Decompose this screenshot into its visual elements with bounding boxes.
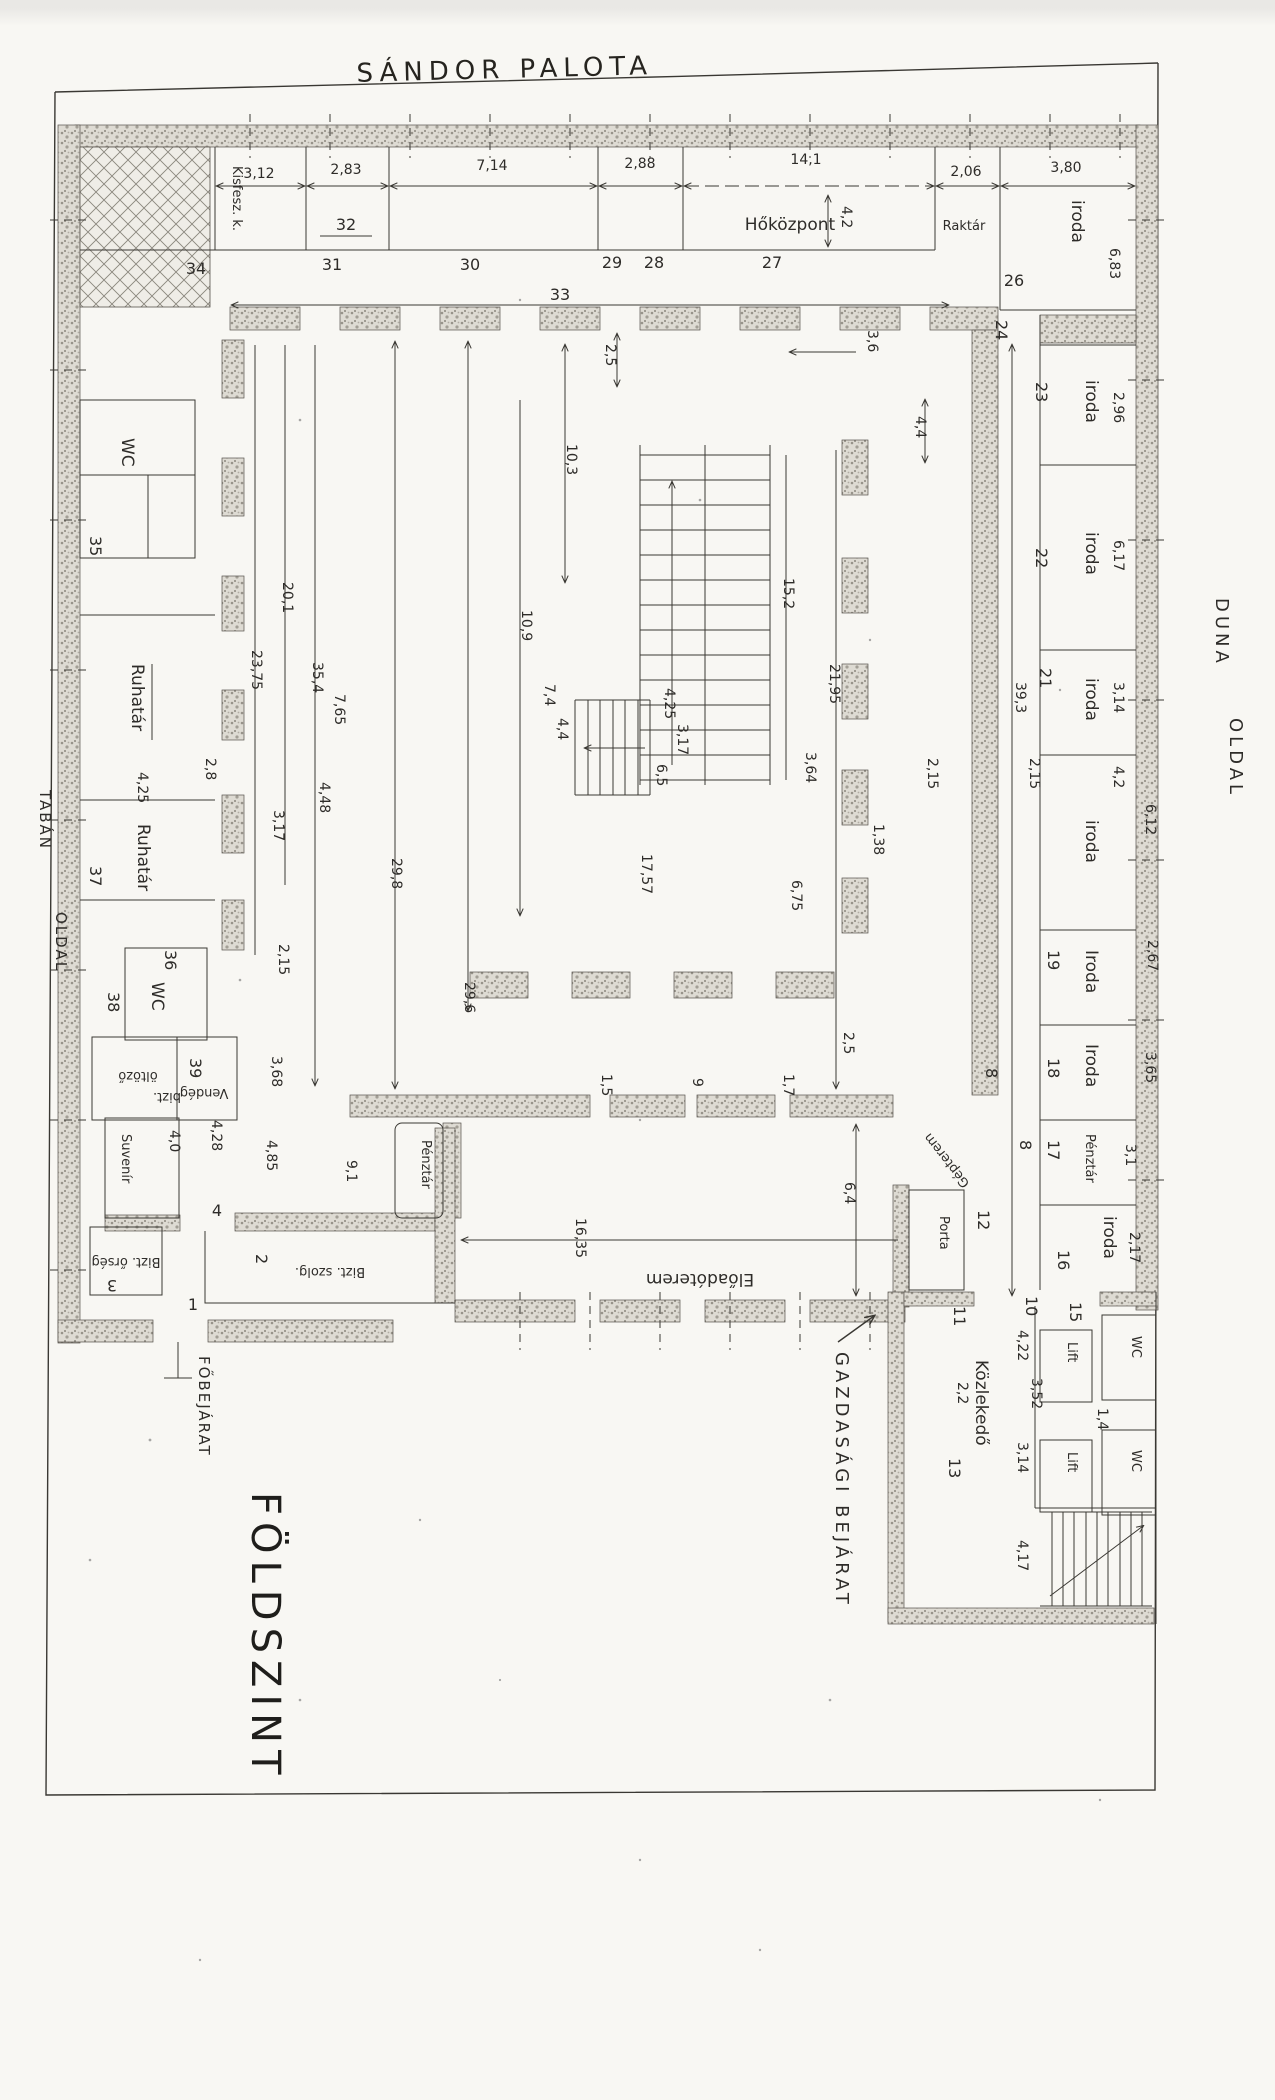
dim-1-38: 1,38 [870, 824, 886, 855]
room-number-19: 19 [1044, 950, 1063, 970]
dim-2-2: 2,2 [954, 1382, 970, 1404]
page-title: SÁNDOR PALOTA [356, 49, 653, 89]
dim-4-2-right: 4,2 [1110, 766, 1126, 788]
room-label-bizt-szolg: Bizt. szolg. [295, 1264, 365, 1279]
room-number-31: 31 [322, 255, 342, 274]
dim-4-28: 4,28 [208, 1120, 224, 1151]
dim-2-8: 2,8 [202, 758, 218, 780]
dim-7-14: 7,14 [476, 158, 507, 174]
room-label-iroda-corner: iroda [1067, 200, 1087, 243]
room-number-8b: 8 [1016, 1140, 1035, 1150]
room-number-13: 13 [945, 1458, 964, 1478]
dim-20-1: 20,1 [279, 582, 295, 613]
dim-3-1: 3,1 [1122, 1144, 1138, 1166]
room-number-12: 12 [974, 1210, 993, 1230]
dim-3-68: 3,68 [268, 1056, 284, 1087]
room-label-wc-36: WC [147, 982, 167, 1011]
dim-39-3: 39,3 [1012, 682, 1028, 713]
dim-3-52: 3,52 [1028, 1378, 1044, 1409]
room-number-23: 23 [1032, 382, 1051, 402]
dim-1-7: 1,7 [780, 1074, 796, 1096]
dim-6-12: 6,12 [1142, 804, 1158, 835]
dim-3-80: 3,80 [1050, 160, 1081, 176]
room-label-vendeg: Vendég [180, 1085, 229, 1100]
dim-2-83: 2,83 [330, 162, 361, 178]
main-entrance-label: FŐBEJÁRAT [195, 1356, 215, 1457]
room-label-porta: Porta [936, 1216, 951, 1250]
main-entrance-mark [164, 1342, 192, 1378]
room-label-raktar: Raktár [943, 219, 986, 234]
dim-33: 33 [550, 285, 570, 304]
room-number-36: 36 [161, 950, 180, 970]
room-label-iroda-22: iroda [1081, 532, 1101, 575]
dim-4-25-left: 4,25 [134, 772, 150, 803]
dim-3-6: 3,6 [864, 330, 880, 352]
dim-21-95: 21,95 [826, 664, 842, 704]
room-label-ruhatar-1: Ruhatár [127, 664, 147, 731]
dim-35-4: 35,4 [309, 662, 325, 693]
dim-1-5: 1,5 [598, 1074, 614, 1096]
side-label-duna-oldal: OLDAL [1225, 718, 1246, 798]
room-label-iroda-19: Iroda [1081, 950, 1101, 993]
dim-4-0: 4,0 [166, 1130, 182, 1152]
room-label-suvenir: Suvenír [118, 1134, 133, 1184]
hatched-corner-room [80, 147, 210, 307]
dim-3-12: 3,12 [243, 166, 274, 182]
dim-14-1: 14,1 [790, 152, 821, 168]
dim-4-22: 4,22 [1014, 1330, 1030, 1361]
room-label-lift-1: Lift [1064, 1342, 1079, 1362]
room-label-wc-a: WC [1128, 1336, 1143, 1358]
room-number-21: 21 [1036, 668, 1055, 688]
room-number-30: 30 [460, 255, 480, 274]
dim-4-25-stair: 4,25 [661, 688, 677, 719]
dim-3-14-annex: 3,14 [1014, 1442, 1030, 1473]
room-number-17: 17 [1044, 1140, 1063, 1160]
dim-6-75: 6,75 [788, 880, 804, 911]
floor-plan-drawing: SÁNDOR PALOTA FÖLDSZINT FŐBEJÁRAT GAZDAS… [0, 0, 1275, 2100]
floor-title: FÖLDSZINT [242, 1492, 290, 1782]
dim-1-4: 1,4 [1094, 1408, 1110, 1430]
annex-staircase [1040, 1512, 1152, 1606]
room-label-wc-b: WC [1128, 1450, 1143, 1472]
dim-2-88: 2,88 [624, 156, 655, 172]
room-label-ruhatar-2: Ruhatár [133, 824, 153, 891]
small-staircase [575, 700, 650, 795]
dim-2-15-left: 2,15 [275, 944, 291, 975]
room-label-iroda-21: iroda [1081, 678, 1101, 721]
dim-3-65: 3,65 [1142, 1052, 1158, 1083]
room-label-kozlekedo: Közlekedő [971, 1360, 991, 1446]
room-number-39: 39 [186, 1058, 205, 1078]
room-number-2: 2 [252, 1254, 271, 1264]
dim-23-75: 23,75 [248, 650, 264, 690]
scan-specks [89, 299, 1102, 1961]
room-number-28: 28 [644, 253, 664, 272]
dim-4-2-top: 4,2 [838, 206, 854, 228]
dim-10-9: 10,9 [518, 610, 534, 641]
dim-6-4: 6,4 [841, 1182, 857, 1204]
dim-6-5: 6,5 [653, 764, 669, 786]
room-label-bizt: bizt. [153, 1089, 181, 1104]
dim-6-83: 6,83 [1106, 248, 1122, 279]
dim-2-06: 2,06 [950, 164, 981, 180]
room-number-15: 15 [1066, 1302, 1085, 1322]
dim-2-15-center: 2,15 [924, 758, 940, 789]
room-number-24: 24 [992, 320, 1011, 340]
room-number-38: 38 [104, 992, 123, 1012]
dim-6-17: 6,17 [1110, 540, 1126, 571]
room-label-penztar-17: Pénztár [1082, 1134, 1097, 1184]
dim-16-35: 16,35 [572, 1218, 588, 1258]
room-number-4: 4 [212, 1201, 222, 1220]
room-label-gepterem: Gépterem [921, 1130, 973, 1191]
dim-17-57: 17,57 [638, 854, 654, 894]
dim-3-64: 3,64 [802, 752, 818, 783]
inner-wall-stubs [222, 340, 244, 950]
room-number-32: 32 [336, 215, 356, 234]
room-label-hokozpont: Hőközpont [745, 215, 836, 235]
room-number-22: 22 [1032, 548, 1051, 568]
scanned-floor-plan-page: SÁNDOR PALOTA FÖLDSZINT FŐBEJÁRAT GAZDAS… [0, 0, 1275, 2100]
room-number-18: 18 [1044, 1058, 1063, 1078]
room-number-37: 37 [86, 866, 105, 886]
dim-10-3: 10,3 [563, 444, 579, 475]
room-number-16: 16 [1054, 1250, 1073, 1270]
room-number-34: 34 [186, 259, 206, 278]
room-label-wc-35: WC [117, 438, 137, 467]
room-label-iroda-20: iroda [1081, 820, 1101, 863]
room-number-29: 29 [602, 253, 622, 272]
room-number-26: 26 [1004, 271, 1024, 290]
room-number-3: 3 [107, 1276, 117, 1295]
dim-29-8: 29,8 [388, 858, 404, 889]
room-number-8a: 8 [982, 1068, 1001, 1078]
room-label-lift-2: Lift [1064, 1452, 1079, 1472]
dim-3-14-right: 3,14 [1110, 682, 1126, 713]
dim-2-17: 2,17 [1126, 1232, 1142, 1263]
dim-7-4: 7,4 [541, 684, 557, 706]
dim-2-67: 2,67 [1144, 940, 1160, 971]
room-label-eloadoterem: Előadóterem [646, 1269, 754, 1289]
dim-4-17: 4,17 [1014, 1540, 1030, 1571]
dim-7-65: 7,65 [331, 694, 347, 725]
economic-entrance-label: GAZDASÁGI BEJÁRAT [831, 1352, 853, 1608]
room-label-penztar-booth: Pénztár [418, 1140, 433, 1190]
dim-9: 9 [689, 1078, 705, 1087]
room-number-35: 35 [86, 536, 105, 556]
dim-3-17-stair: 3,17 [674, 724, 690, 755]
dim-4-85: 4,85 [263, 1140, 279, 1171]
dim-2-5-se: 2,5 [840, 1032, 856, 1054]
room-label-bizt-orseg: Bizt. őrség [91, 1254, 160, 1269]
dim-4-4-stair: 4,4 [554, 718, 570, 740]
room-number-1: 1 [188, 1295, 198, 1314]
dim-9-1: 9,1 [343, 1160, 359, 1182]
dim-3-17-left: 3,17 [270, 810, 286, 841]
main-staircase [640, 445, 770, 785]
side-label-duna: DUNA [1211, 598, 1232, 667]
room-label-oltozo: öltöző [118, 1068, 157, 1083]
dim-4-4-ne: 4,4 [912, 416, 928, 438]
dim-15-2: 15,2 [780, 578, 796, 609]
room-label-iroda-23: iroda [1081, 380, 1101, 423]
room-number-27: 27 [762, 253, 782, 272]
side-label-taban: TABÁN [36, 789, 55, 850]
dim-2-96: 2,96 [1110, 392, 1126, 423]
dim-4-48: 4,48 [316, 782, 332, 813]
dim-29-6: 29,6 [461, 982, 477, 1013]
room-label-iroda-16: iroda [1099, 1216, 1119, 1259]
dim-2-5-top: 2,5 [602, 344, 618, 366]
room-label-kisfesz: Kisfesz. k. [229, 166, 244, 231]
room-label-iroda-18: Iroda [1081, 1044, 1101, 1087]
side-label-taban-oldal: OLDAL [52, 912, 70, 972]
room-number-10: 10 [1022, 1296, 1041, 1316]
dim-2-15-corridor: 2,15 [1026, 758, 1042, 789]
room-number-11: 11 [950, 1306, 969, 1326]
